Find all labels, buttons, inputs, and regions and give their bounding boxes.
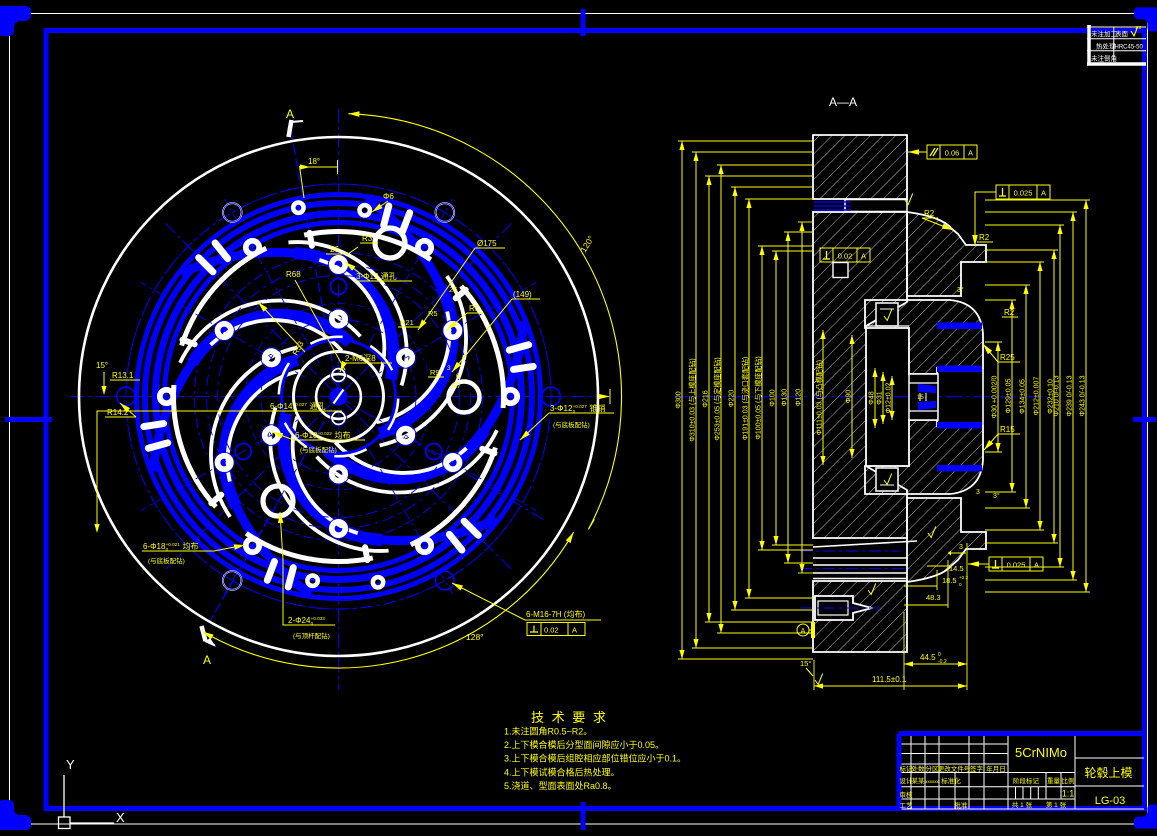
svg-text:Φ220: Φ220 [729, 390, 736, 407]
svg-text:Φ120: Φ120 [796, 389, 803, 406]
svg-text:Φ210 0/-0.13: Φ210 0/-0.13 [1054, 375, 1061, 416]
svg-text:通孔: 通孔 [310, 401, 326, 411]
svg-text:Ø175: Ø175 [477, 239, 497, 248]
svg-text:R9: R9 [430, 368, 440, 377]
svg-text:阶段标记: 阶段标记 [1013, 776, 1040, 785]
svg-text:A: A [572, 626, 577, 635]
svg-text:26: 26 [330, 245, 339, 254]
svg-text:1.6: 1.6 [1135, 25, 1142, 30]
svg-text:3-Φ12: 3-Φ12 [550, 404, 573, 413]
svg-text:Φ100±0.05 (与下模座配钻): Φ100±0.05 (与下模座配钻) [754, 356, 763, 439]
svg-text:A: A [861, 252, 866, 261]
svg-text:均布: 均布 [183, 541, 199, 551]
svg-text:6-Φ18: 6-Φ18 [143, 542, 166, 551]
svg-text:Φ243 0/-0.13: Φ243 0/-0.13 [1080, 375, 1087, 416]
svg-text:Φ48: Φ48 [869, 391, 876, 404]
svg-text:审核: 审核 [900, 790, 914, 799]
svg-text:Φ100: Φ100 [770, 389, 777, 406]
svg-text:2.上下模合模后分型面间隙应小于0.05。: 2.上下模合模后分型面间隙应小于0.05。 [504, 739, 664, 750]
svg-text:R5: R5 [469, 304, 480, 313]
svg-text:Φ31: Φ31 [877, 391, 884, 404]
svg-text:-0.2: -0.2 [938, 659, 947, 665]
svg-text:均布: 均布 [335, 430, 351, 440]
svg-text:R2: R2 [979, 233, 990, 242]
svg-text:3: 3 [447, 365, 451, 372]
svg-text:6-Φ14: 6-Φ14 [270, 402, 293, 411]
svg-text:Φ212±0.007: Φ212±0.007 [1034, 377, 1041, 416]
svg-text:6-M16-7H (均布): 6-M16-7H (均布) [526, 609, 585, 619]
svg-text:R68: R68 [286, 270, 301, 279]
svg-text:Φ300: Φ300 [676, 391, 683, 408]
svg-text:5CrNIMo: 5CrNIMo [1015, 745, 1067, 760]
svg-text:3: 3 [959, 544, 963, 551]
svg-text:某某: 某某 [912, 777, 926, 785]
svg-text:26: 26 [449, 285, 457, 294]
svg-text:年月日: 年月日 [986, 764, 1006, 773]
svg-text:0.06: 0.06 [945, 149, 960, 158]
svg-text:Φ239 0/-0.13: Φ239 0/-0.13 [1067, 375, 1074, 416]
svg-text:44.5: 44.5 [920, 653, 936, 662]
svg-text:R2: R2 [924, 209, 935, 218]
svg-text:Φ130: Φ130 [782, 389, 789, 406]
svg-text:0: 0 [959, 582, 962, 587]
svg-text:Φ12±0.02: Φ12±0.02 [886, 382, 893, 413]
svg-text:第 1 张: 第 1 张 [1046, 800, 1067, 809]
svg-text:Φ90: Φ90 [846, 390, 853, 403]
svg-text:Φ253±0.05 (与定模座配钻): Φ253±0.05 (与定模座配钻) [713, 357, 722, 440]
svg-text:处数: 处数 [912, 764, 926, 773]
svg-text:128°: 128° [466, 632, 484, 642]
svg-text:通孔: 通孔 [381, 271, 397, 281]
svg-text:2-Φ24: 2-Φ24 [288, 616, 311, 625]
svg-text:R14.2: R14.2 [107, 408, 129, 417]
svg-text:(与底板配钻): (与底板配钻) [148, 556, 185, 565]
svg-text:6: 6 [456, 373, 460, 380]
svg-text:6-Φ18: 6-Φ18 [295, 431, 318, 440]
svg-text:R15: R15 [1000, 425, 1015, 434]
svg-text:(与底板配钻): (与底板配钻) [553, 420, 590, 429]
svg-text:14.5: 14.5 [949, 564, 964, 573]
svg-text:15°: 15° [800, 659, 811, 668]
svg-text:批准: 批准 [955, 801, 969, 810]
svg-text:4.上下模试模合格后热处理。: 4.上下模试模合格后热处理。 [504, 766, 620, 777]
svg-text:3: 3 [976, 489, 980, 496]
svg-text:标准化: 标准化 [941, 776, 961, 785]
svg-text:Φ6: Φ6 [383, 192, 394, 201]
svg-text:A: A [203, 653, 211, 667]
svg-text:(149): (149) [513, 290, 532, 299]
svg-text:R21: R21 [400, 318, 414, 327]
svg-text:工艺: 工艺 [900, 802, 914, 810]
svg-text:111.5±0.1: 111.5±0.1 [872, 675, 907, 684]
svg-text:1:1: 1:1 [1062, 789, 1075, 799]
svg-text:R2: R2 [1004, 308, 1015, 317]
svg-text:18°: 18° [308, 157, 320, 166]
svg-text:比例: 比例 [1062, 776, 1075, 785]
svg-text:Φ30 +0.002/0: Φ30 +0.002/0 [992, 376, 999, 419]
svg-text:R13.1: R13.1 [112, 371, 134, 380]
svg-text:A—A: A—A [829, 95, 857, 109]
svg-text:LG-03: LG-03 [1095, 795, 1126, 807]
svg-text:Φ129±0.05: Φ129±0.05 [1006, 379, 1013, 414]
svg-text:Y: Y [66, 757, 75, 772]
svg-text:Φ216: Φ216 [703, 390, 710, 407]
svg-text:锥销: 锥销 [590, 403, 606, 413]
svg-text:R25: R25 [1000, 353, 1015, 362]
svg-text:更改文件号: 更改文件号 [938, 764, 971, 773]
svg-text:X: X [116, 810, 125, 825]
svg-text:0: 0 [938, 652, 941, 658]
svg-text:表面: 表面 [1115, 29, 1129, 38]
svg-text:技 术 要 求: 技 术 要 求 [531, 710, 608, 725]
svg-text:3.上下模合模后组腔相应部位错位应小于0.1。: 3.上下模合模后组腔相应部位错位应小于0.1。 [504, 753, 686, 764]
svg-text:3°: 3° [957, 286, 964, 294]
svg-text:Φ191±0.03 (与浇口套配钻): Φ191±0.03 (与浇口套配钻) [741, 357, 750, 440]
svg-text:0.025: 0.025 [1007, 561, 1026, 570]
svg-text:R5: R5 [428, 309, 438, 318]
svg-text:1.未注圆角R0.5~R2。: 1.未注圆角R0.5~R2。 [504, 726, 592, 737]
svg-text:xxxxxx: xxxxxx [925, 779, 939, 784]
svg-text:(与顶杆配钻): (与顶杆配钻) [293, 631, 330, 640]
svg-text:0.02: 0.02 [838, 252, 853, 261]
svg-text:未注加工: 未注加工 [1091, 29, 1118, 38]
svg-text:HRC45-50: HRC45-50 [1115, 45, 1144, 51]
svg-text:Φ134±0.05: Φ134±0.05 [1020, 379, 1027, 414]
svg-text:A: A [801, 628, 806, 635]
svg-text:(与底板配钻): (与底板配钻) [300, 445, 337, 454]
svg-text:Φ111±0.03 (与凸模配钻): Φ111±0.03 (与凸模配钻) [815, 360, 824, 435]
svg-text:Φ310±0.03 (与上模座配钻): Φ310±0.03 (与上模座配钻) [688, 358, 697, 441]
svg-text:18.5: 18.5 [942, 576, 957, 585]
svg-text:轮毂上模: 轮毂上模 [1084, 766, 1132, 780]
svg-text:2-M6深8: 2-M6深8 [345, 354, 376, 363]
svg-text:重量: 重量 [1047, 777, 1061, 785]
svg-text:A: A [1034, 561, 1039, 570]
svg-text:A: A [286, 107, 294, 121]
svg-text:0.02: 0.02 [544, 626, 559, 635]
svg-text:3°: 3° [993, 492, 1000, 500]
svg-text:签字: 签字 [970, 764, 984, 773]
svg-text:A: A [968, 149, 973, 158]
svg-text:15: 15 [917, 395, 924, 401]
svg-text:热处理: 热处理 [1096, 42, 1116, 51]
svg-text:未注倒角: 未注倒角 [1091, 54, 1117, 63]
svg-text:48.3: 48.3 [926, 593, 941, 602]
svg-text:+0.2: +0.2 [959, 575, 969, 580]
svg-text:共 1 张: 共 1 张 [1012, 800, 1033, 809]
svg-text:R3: R3 [362, 234, 373, 243]
svg-text:A: A [1041, 189, 1046, 198]
svg-text:R7: R7 [452, 383, 461, 390]
svg-text:0.025: 0.025 [1014, 189, 1033, 198]
svg-text:5.浇道、型面表面处Ra0.8。: 5.浇道、型面表面处Ra0.8。 [504, 780, 617, 791]
svg-text:15°: 15° [96, 361, 108, 370]
